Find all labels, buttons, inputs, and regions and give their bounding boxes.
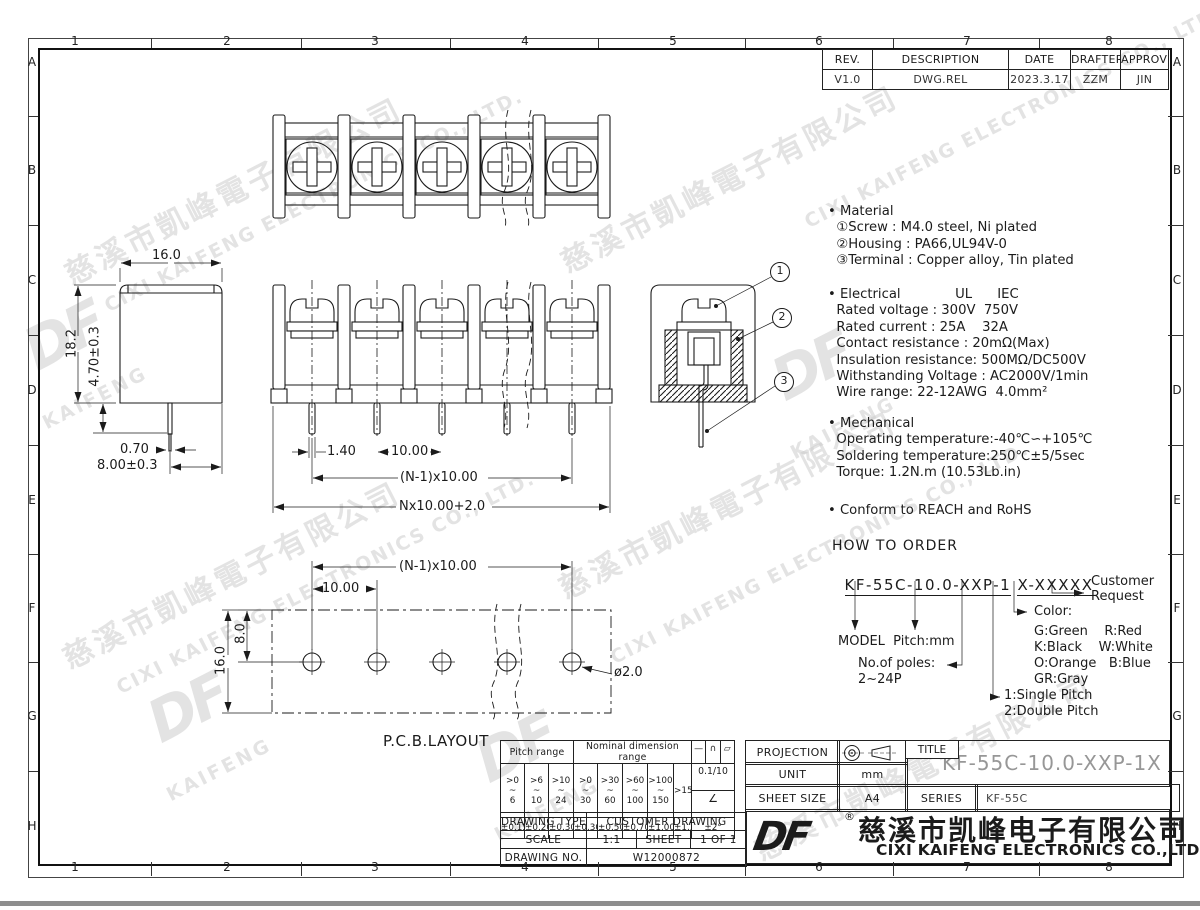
electrical-spec: • Electrical UL IEC Rated voltage : 300V… [828,287,1088,402]
grid-row-label: A [25,55,39,69]
grid-row-label: E [1170,493,1184,507]
series-label: SERIES [905,784,978,812]
drawing-type-label: DRAWING TYPE [501,813,587,831]
dim-n1-pitch: (N-1)x10.00 [400,470,478,485]
dim-total-length: Nx10.00+2.0 [399,499,485,514]
grid-tick [893,38,894,48]
dim-pitch: 10.00 [391,444,428,459]
order-code-suffix: X-XXXXX [1017,576,1093,596]
grid-col-label: 1 [68,860,82,874]
grid-row-label: B [1170,163,1184,177]
company-name-en: CIXI KAIFENG ELECTRONICS CO.,LTD [876,841,1200,859]
spec-line: ②Housing : PA66,UL94V-0 [828,237,1074,253]
mechanical-spec: • Mechanical Operating temperature:-40℃∽… [828,416,1092,482]
drawing-no-label: DRAWING NO. [501,849,587,867]
tol-nominal-header: Nominal dimension range [574,741,692,764]
rev-header: APPROVER [1121,50,1169,70]
dim-pcb-pitch: 10.00 [322,581,359,596]
revision-table: REV. DESCRIPTION DATE DRAFTER APPROVER V… [822,49,1169,90]
grid-tick [1168,662,1183,663]
page-edge-shadow [0,901,1200,906]
spec-line: ①Screw : M4.0 steel, Ni plated [828,220,1074,236]
grid-tick [1039,862,1040,876]
grid-tick [1168,225,1183,226]
grid-tick [1168,771,1183,772]
rev-value: ZZM [1071,70,1121,90]
grid-tick [151,38,152,48]
order-color-option: G:Green R:Red [1034,624,1142,639]
company-logo: DF [750,814,811,860]
rev-header: DESCRIPTION [873,50,1009,70]
conform-note: • Conform to REACH and RoHS [828,503,1032,519]
grid-tick [1168,554,1183,555]
grid-col-label: 4 [518,34,532,48]
rev-value: JIN [1121,70,1169,90]
spec-line: Rated voltage : 300V 750V [828,303,1088,319]
dim-pin-offset: 8.00±0.3 [97,458,158,473]
grid-col-label: 7 [960,34,974,48]
scale-label: SCALE [501,831,587,849]
grid-tick [28,225,38,226]
dim-pin-thickness: 0.70 [120,442,149,457]
drawing-no-value: W12000872 [587,849,747,867]
spec-line: Soldering temperature:250℃±5/5sec [828,449,1092,465]
tol-range: >30 ~ 60 [598,764,623,818]
dim-pcb-offset: 8.0 [234,619,249,649]
sheet-size-value: A4 [837,784,908,812]
callout-screw: 1 [770,262,790,282]
tol-range: >100 ~ 150 [648,764,674,818]
sheet-label: SHEET [637,831,691,849]
tol-range: >150 [674,764,692,818]
callout-terminal: 3 [774,372,794,392]
grid-row-label: C [25,273,39,287]
order-code: KF-55C-10.0-XXP-1 X-XXXXX [832,558,1094,594]
flatness-tolerance: 0.1/10 [692,764,734,791]
dim-side-width: 16.0 [152,248,181,263]
grid-row-label: B [25,163,39,177]
sheet-value: 1 OF 1 [691,831,747,849]
order-poles-label: No.of poles: [858,656,935,671]
grid-row-label: C [1170,273,1184,287]
order-color-option: GR:Gray [1034,672,1088,687]
tol-range: >60 ~ 100 [623,764,648,818]
dim-pin-width: 1.40 [327,444,356,459]
drawing-info-table: DRAWING TYPE CUSTOMER DRAWING SCALE 1:1 … [500,812,747,867]
spec-line: Operating temperature:-40℃∽+105℃ [828,432,1092,448]
tol-range: >0 ~ 6 [501,764,525,818]
rev-header: REV. [823,50,873,70]
grid-tick [301,862,302,876]
grid-tick [28,116,38,117]
spec-line: • Conform to REACH and RoHS [828,503,1032,519]
grid-col-label: 8 [1102,34,1116,48]
grid-row-label: E [25,493,39,507]
grid-tick [450,862,451,876]
rev-header: DRAFTER [1071,50,1121,70]
drawing-type-value: CUSTOMER DRAWING [587,813,747,831]
grid-col-label: 3 [368,860,382,874]
tol-range: >0 ~ 30 [574,764,598,818]
grid-tick [1168,445,1183,446]
grid-col-label: 2 [220,34,234,48]
spec-line: • Mechanical [828,416,1092,432]
grid-tick [28,445,38,446]
grid-row-label: F [25,601,39,615]
tol-symbols: — ∩ ▱ [692,741,735,764]
grid-tick [28,771,38,772]
grid-row-label: G [1170,709,1184,723]
grid-row-label: G [25,709,39,723]
grid-tick [301,38,302,48]
order-customer-note: Customer Request [1091,574,1154,604]
grid-row-label: D [1170,383,1184,397]
tol-range: >10 ~ 24 [549,764,574,818]
grid-tick [745,38,746,48]
material-spec: • Material ①Screw : M4.0 steel, Ni plate… [828,204,1074,270]
grid-tick [893,862,894,876]
grid-tick [1039,38,1040,48]
grid-tick [1168,116,1183,117]
spec-line: Contact resistance : 20mΩ(Max) [828,336,1088,352]
rev-value: 2023.3.17 [1009,70,1071,90]
grid-col-label: 6 [812,34,826,48]
order-model-label: MODEL Pitch:mm [838,634,955,649]
grid-row-label: H [25,819,39,833]
sheet-size-label: SHEET SIZE [745,784,840,812]
spec-line: Rated current : 25A 32A [828,320,1088,336]
order-single-pitch: 1:Single Pitch [1004,688,1092,703]
grid-col-label: 2 [220,860,234,874]
grid-row-label: F [1170,601,1184,615]
tol-flatness-cell: 0.1/10 ∠ [692,764,735,818]
grid-tick [151,862,152,876]
flatness-symbol: ▱ [720,741,734,763]
pcb-layout-label: P.C.B.LAYOUT [383,732,489,750]
third-angle-projection-icon [842,744,904,762]
rev-header: DATE [1009,50,1071,70]
grid-row-label: A [1170,55,1184,69]
dim-pin-length: 4.70±0.3 [88,325,103,389]
order-color-option: K:Black W:White [1034,640,1153,655]
grid-tick [28,335,38,336]
grid-col-label: 5 [666,34,680,48]
order-color-title: Color: [1034,604,1072,619]
registered-mark: ® [844,810,855,823]
dim-pcb-n1-pitch: (N-1)x10.00 [399,559,477,574]
callout-housing: 2 [772,308,792,328]
grid-col-label: 1 [68,34,82,48]
straightness-symbol: — [692,741,705,763]
spec-line: • Material [828,204,1074,220]
scale-value: 1:1 [587,831,637,849]
grid-col-label: 3 [368,34,382,48]
grid-tick [1168,335,1183,336]
grid-row-label: D [25,383,39,397]
title-label: TITLE [905,740,959,759]
grid-tick [450,38,451,48]
order-double-pitch: 2:Double Pitch [1004,704,1099,719]
order-color-option: O:Orange B:Blue [1034,656,1151,671]
order-code-main: KF-55C-10.0-XXP-1 [845,576,1012,596]
arc-symbol: ∩ [705,741,719,763]
dim-hole-diameter: ø2.0 [614,665,643,680]
order-heading: HOW TO ORDER [832,538,958,554]
tol-pitch-header: Pitch range [501,741,574,764]
grid-tick [28,662,38,663]
dim-pcb-width: 16.0 [214,643,229,679]
spec-line: Withstanding Voltage : AC2000V/1min [828,369,1088,385]
spec-line: Torque: 1.2N.m (10.53Lb.in) [828,465,1092,481]
spec-line: Wire range: 22-12AWG 4.0mm² [828,385,1088,401]
rev-value: DWG.REL [873,70,1009,90]
grid-tick [28,554,38,555]
series-value: KF-55C [975,784,1180,812]
spec-line: • Electrical UL IEC [828,287,1088,303]
order-poles-range: 2~24P [858,672,902,687]
grid-tick [598,38,599,48]
tol-range: >6 ~ 10 [525,764,549,818]
spec-line: ③Terminal : Copper alloy, Tin plated [828,253,1074,269]
rev-value: V1.0 [823,70,873,90]
spec-line: Insulation resistance: 500MΩ/DC500V [828,353,1088,369]
drawing-title: KF-55C-10.0-XXP-1X [942,751,1162,775]
